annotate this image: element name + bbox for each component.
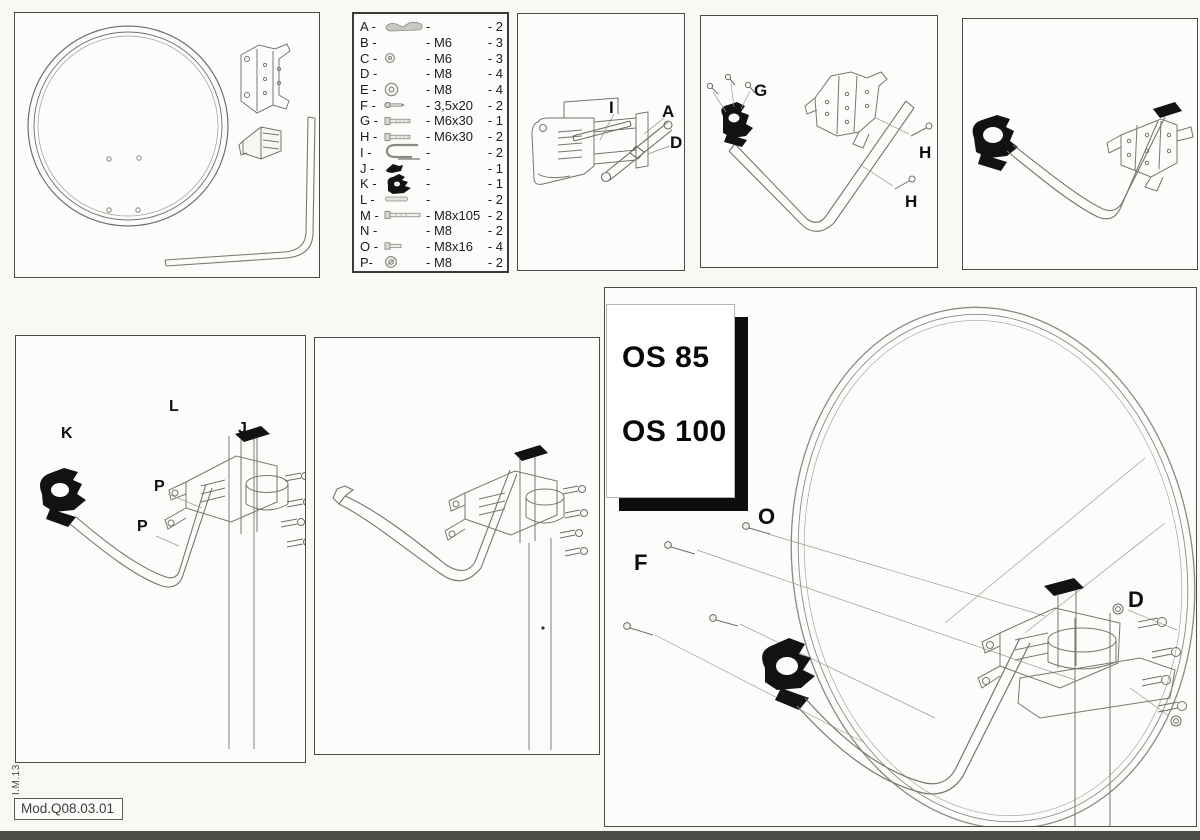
arm-tube [70, 484, 212, 587]
part-letter: J - [360, 161, 384, 176]
parts-list-row: H - - M6x30 - 2 [360, 129, 503, 145]
part-letter: I - [360, 145, 384, 160]
parts-list-row: P- - M8 - 2 [360, 254, 503, 270]
parts-list-row: I - - - 2 [360, 145, 503, 161]
part-qty: - 2 [488, 129, 503, 144]
panel-step-pole-labeled: K L J P P [15, 335, 306, 763]
part-qty: - 2 [488, 208, 503, 223]
bolt-s-icon [384, 241, 426, 251]
pole [529, 538, 551, 750]
panel-step-wall-mount: G H H [700, 15, 938, 268]
part-letter: P- [360, 255, 384, 270]
fixing-screws [624, 523, 770, 635]
part-size: - M8x105 [426, 208, 483, 223]
clamp-plate-icon [384, 20, 426, 33]
parts-list-row: K - - - 1 [360, 176, 503, 192]
part-size: - [426, 176, 483, 191]
arm-tube [797, 638, 1030, 794]
part-qty: - 4 [488, 66, 503, 81]
parts-list-row: D - - M8 - 4 [360, 66, 503, 82]
part-letter: C - [360, 51, 384, 66]
parts-list-row: B - - M6 - 3 [360, 35, 503, 51]
part-label-d: D [1128, 589, 1144, 611]
panel-step-pole [314, 337, 600, 755]
panel-step-bracket: I A D [517, 13, 685, 271]
scan-edge-strip [0, 831, 1200, 840]
part-size: - [426, 19, 483, 34]
imprint-code: I.M.13 [11, 764, 22, 795]
part-size: - [426, 192, 483, 207]
mount-cluster [445, 445, 588, 556]
part-label-g: G [754, 82, 767, 99]
part-label-p2: P [137, 519, 148, 535]
parts-list-row: C - - M6 - 3 [360, 50, 503, 66]
bolt-m-icon [384, 132, 426, 142]
parts-list: A - - - 2 B - - M6 - 3 C - - M6 - 3 D - … [352, 12, 509, 273]
dish [754, 288, 1196, 826]
part-letter: E - [360, 82, 384, 97]
part-letter: B - [360, 35, 384, 50]
part-qty: - 4 [488, 239, 503, 254]
parts-list-row: G - - M6x30 - 1 [360, 113, 503, 129]
part-letter: M - [360, 208, 384, 223]
pole [1075, 613, 1110, 826]
black-cap [1153, 102, 1182, 118]
panel-final-assembly: OS 85 OS 100 F O D [604, 287, 1197, 827]
model-name-os100: OS 100 [622, 415, 727, 449]
part-size: - M6 [426, 51, 483, 66]
part-letter: L - [360, 192, 384, 207]
u-bolt-icon [384, 142, 426, 162]
mount-cluster [165, 426, 305, 547]
part-size: - M6x30 [426, 129, 483, 144]
model-box: OS 85 OS 100 [606, 304, 735, 498]
part-size: - M8 [426, 66, 483, 81]
part-qty: - 2 [488, 223, 503, 238]
parts-list-row: L - - - 2 [360, 192, 503, 208]
part-size: - M6 [426, 35, 483, 50]
arm-tube [333, 470, 517, 581]
model-name-os85: OS 85 [622, 341, 710, 375]
part-qty: - 2 [488, 192, 503, 207]
leader-lines [655, 458, 1177, 743]
parts-list-row: J - - - 1 [360, 160, 503, 176]
arm-tube [1007, 117, 1165, 219]
part-letter: D - [360, 66, 384, 81]
part-size: - M8 [426, 223, 483, 238]
part-qty: - 1 [488, 113, 503, 128]
parts-list-row: O - - M8x16 - 4 [360, 239, 503, 255]
black-clamp-part [973, 115, 1018, 171]
parts-list-rows: A - - - 2 B - - M6 - 3 C - - M6 - 3 D - … [360, 19, 503, 270]
part-letter: G - [360, 113, 384, 128]
part-label-p1: P [154, 479, 165, 495]
pole-mount-drawing [16, 336, 305, 762]
part-label-j: J [238, 421, 247, 437]
part-size: - M6x30 [426, 113, 483, 128]
part-letter: A - [360, 19, 384, 34]
part-size: - M8 [426, 255, 483, 270]
part-label-h1: H [919, 144, 931, 161]
part-label-l: L [169, 399, 179, 415]
part-letter: N - [360, 223, 384, 238]
black-clamp-icon [384, 173, 426, 195]
panel-components-overview [14, 12, 320, 278]
part-qty: - 2 [488, 98, 503, 113]
part-label-o: O [758, 506, 775, 528]
parts-list-row: E - - M8 - 4 [360, 82, 503, 98]
bolt-l-icon [384, 210, 426, 220]
part-label-f: F [634, 552, 647, 574]
mod-label: Mod.Q08.03.01 [14, 798, 123, 820]
part-letter: O - [360, 239, 384, 254]
rod-icon [384, 195, 426, 203]
parts-list-row: F - - 3,5x20 - 2 [360, 97, 503, 113]
wall-mount-drawing [701, 16, 937, 267]
mast-bracket-part [805, 72, 887, 148]
part-label-i: I [609, 99, 614, 116]
black-clamp-part [40, 468, 86, 527]
pole-mount-reverse-drawing [315, 338, 599, 754]
instruction-sheet: A - - - 2 B - - M6 - 3 C - - M6 - 3 D - … [0, 0, 1200, 840]
part-qty: - 4 [488, 82, 503, 97]
part-qty: - 3 [488, 35, 503, 50]
part-qty: - 2 [488, 255, 503, 270]
washer-s-icon [384, 52, 426, 64]
parts-list-row: A - - - 2 [360, 19, 503, 35]
part-size: - M8 [426, 82, 483, 97]
screw-s-icon [384, 100, 426, 110]
lock-washer-icon [384, 255, 426, 269]
parts-list-row: M - - M8x105 - 2 [360, 207, 503, 223]
part-qty: - 1 [488, 161, 503, 176]
part-size: - [426, 145, 483, 160]
bracket-assembly-drawing [518, 14, 684, 270]
components-drawing [15, 13, 319, 277]
dish-bracket [1107, 119, 1193, 191]
part-letter: F - [360, 98, 384, 113]
part-qty: - 2 [488, 19, 503, 34]
part-label-a: A [662, 103, 674, 120]
mount-cluster [978, 578, 1187, 718]
part-label-k: K [61, 426, 73, 442]
part-label-h2: H [905, 193, 917, 210]
nuts [1113, 604, 1181, 726]
panel-step-arm [962, 18, 1198, 270]
black-clamp-part [721, 102, 753, 147]
part-size: - 3,5x20 [426, 98, 483, 113]
washer-l-icon [384, 82, 426, 97]
l-tube-part [165, 117, 315, 266]
part-letter: K - [360, 176, 384, 191]
part-letter: H - [360, 129, 384, 144]
j-tube-part [729, 101, 914, 231]
part-qty: - 1 [488, 176, 503, 191]
part-qty: - 3 [488, 51, 503, 66]
arm-assembled-drawing [963, 19, 1197, 269]
dish-bracket-part [241, 44, 290, 113]
bolt-m-icon [384, 116, 426, 126]
part-size: - M8x16 [426, 239, 483, 254]
part-size: - [426, 161, 483, 176]
parts-list-row: N - - M8 - 2 [360, 223, 503, 239]
part-qty: - 2 [488, 145, 503, 160]
clamp-block-part [239, 127, 281, 159]
part-label-d: D [670, 134, 682, 151]
